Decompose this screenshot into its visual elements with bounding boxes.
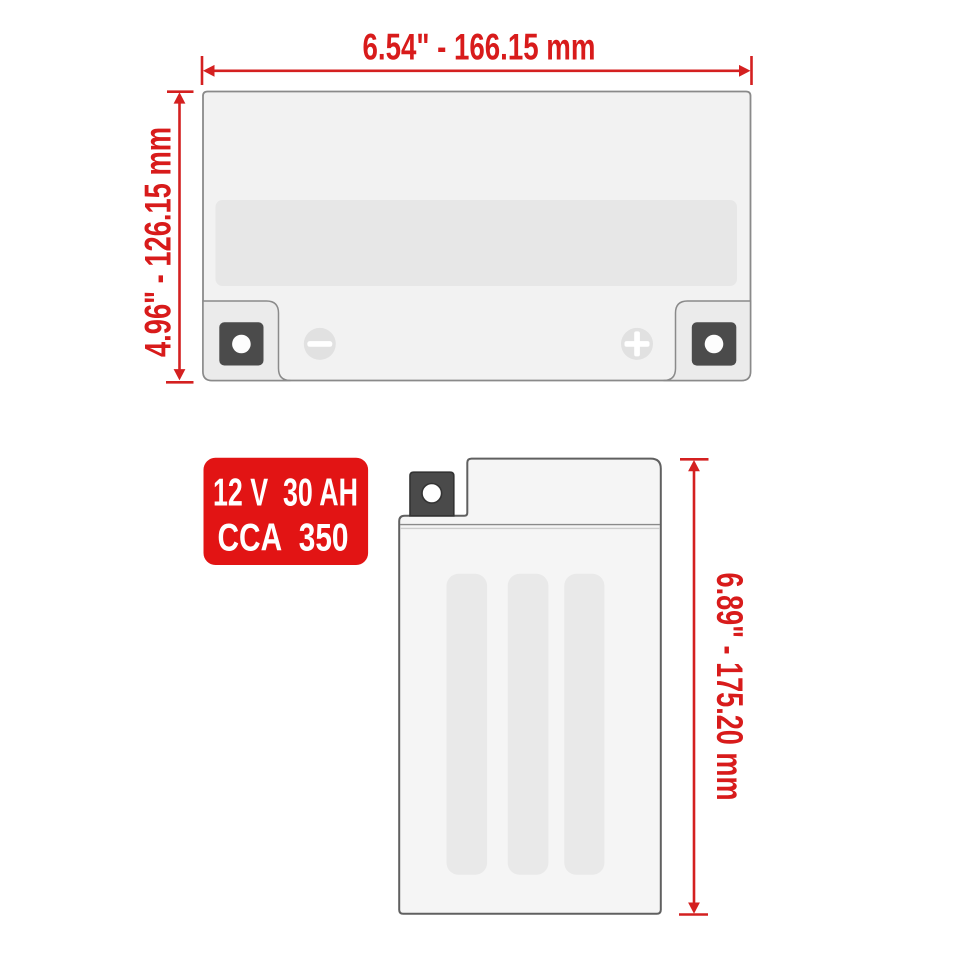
svg-text:CCA 350: CCA 350 (218, 517, 349, 560)
svg-text:6.54" - 166.15 mm: 6.54" - 166.15 mm (363, 27, 596, 68)
svg-text:4.96" - 126.15 mm: 4.96" - 126.15 mm (138, 127, 179, 357)
svg-text:12 V 30 AH: 12 V 30 AH (213, 472, 358, 515)
svg-text:6.89" - 175.20 mm: 6.89" - 175.20 mm (709, 573, 750, 801)
